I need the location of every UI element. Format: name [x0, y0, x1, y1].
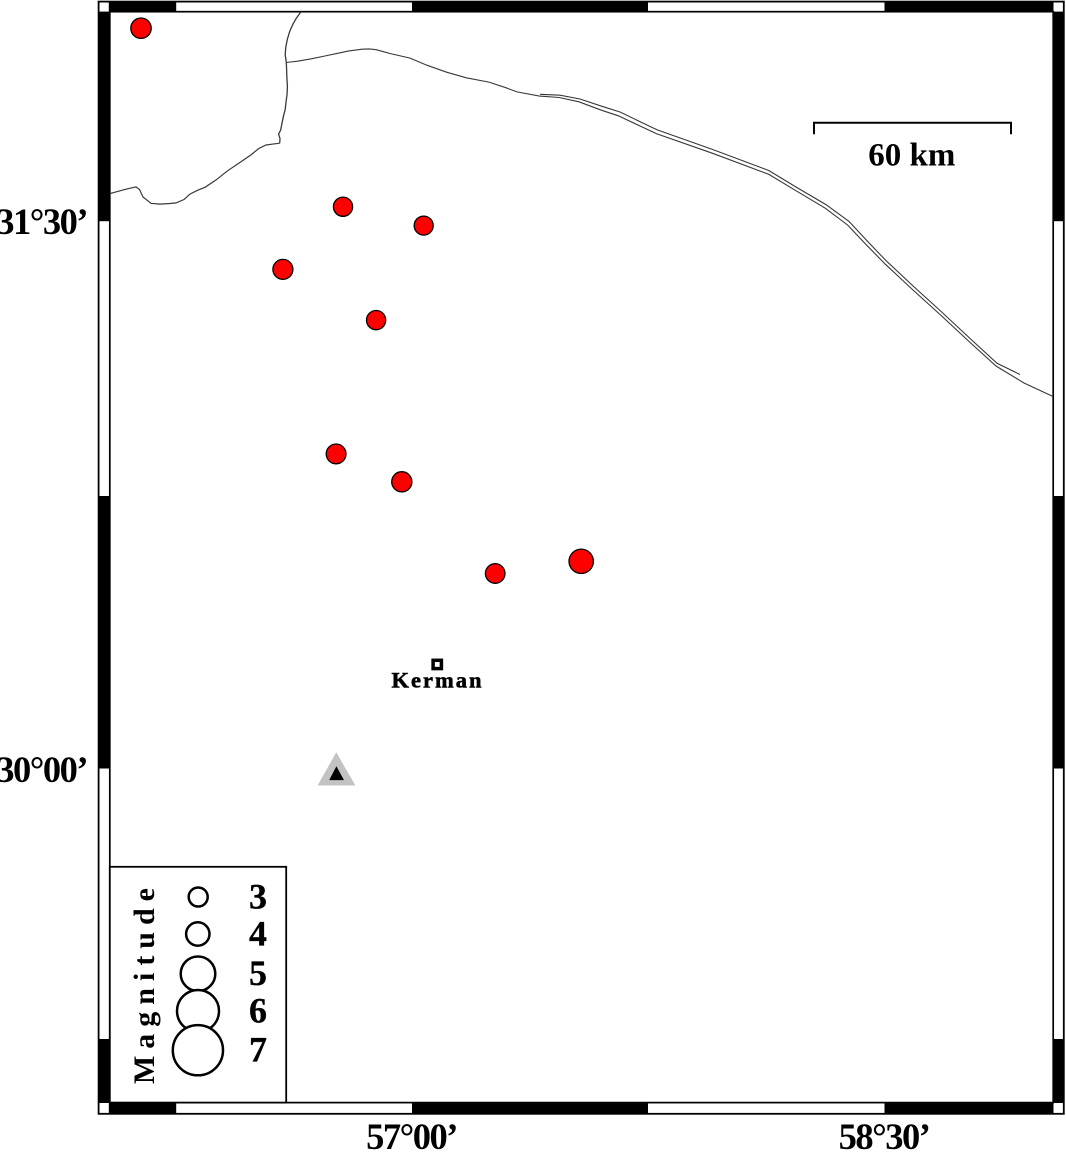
svg-text:57°00’: 57°00’ — [366, 1116, 457, 1152]
svg-text:60 km: 60 km — [868, 138, 955, 174]
svg-text:Magnitude: Magnitude — [128, 881, 161, 1084]
svg-text:31°30’: 31°30’ — [0, 201, 87, 242]
svg-text:58°30’: 58°30’ — [839, 1116, 930, 1152]
svg-text:30°00’: 30°00’ — [0, 749, 87, 790]
svg-text:3: 3 — [249, 876, 267, 916]
svg-text:Kerman: Kerman — [392, 667, 484, 692]
svg-text:7: 7 — [249, 1030, 267, 1070]
svg-text:5: 5 — [249, 953, 267, 993]
svg-text:6: 6 — [249, 990, 267, 1030]
svg-text:4: 4 — [249, 913, 267, 953]
